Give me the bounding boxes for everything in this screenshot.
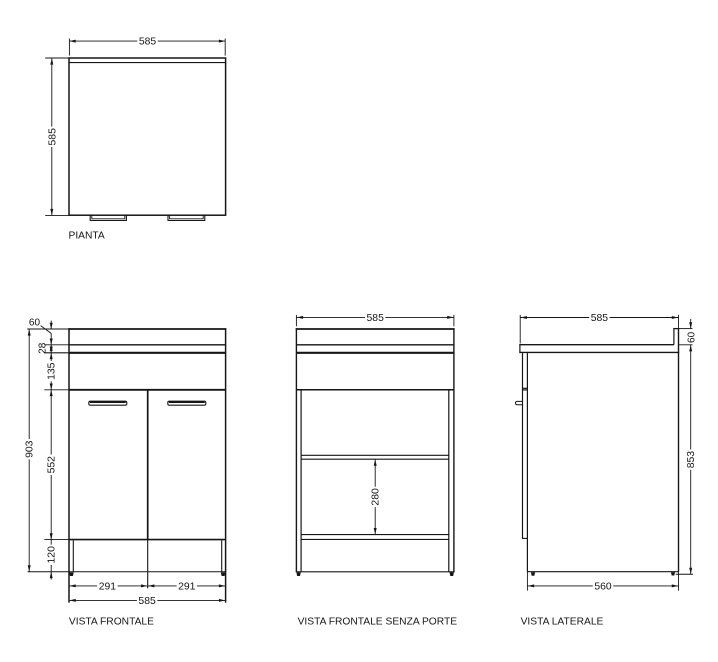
svg-text:280: 280 [371,488,382,506]
svg-text:291: 291 [99,582,117,593]
svg-text:853: 853 [686,451,697,469]
svg-text:585: 585 [139,37,157,48]
svg-text:VISTA FRONTALE SENZA PORTE: VISTA FRONTALE SENZA PORTE [298,617,458,628]
svg-text:28: 28 [38,342,49,354]
svg-text:VISTA FRONTALE: VISTA FRONTALE [69,617,154,628]
svg-text:552: 552 [46,456,57,474]
svg-text:291: 291 [178,582,196,593]
svg-text:903: 903 [25,440,36,458]
svg-text:120: 120 [46,546,57,564]
svg-text:585: 585 [367,313,385,324]
svg-text:585: 585 [138,596,156,607]
svg-text:PIANTA: PIANTA [69,230,105,241]
svg-text:560: 560 [594,582,612,593]
svg-text:585: 585 [591,313,609,324]
svg-text:60: 60 [686,331,697,343]
svg-text:60: 60 [29,317,41,328]
svg-text:585: 585 [47,128,58,146]
svg-text:VISTA LATERALE: VISTA LATERALE [521,617,604,628]
svg-text:135: 135 [46,362,57,380]
